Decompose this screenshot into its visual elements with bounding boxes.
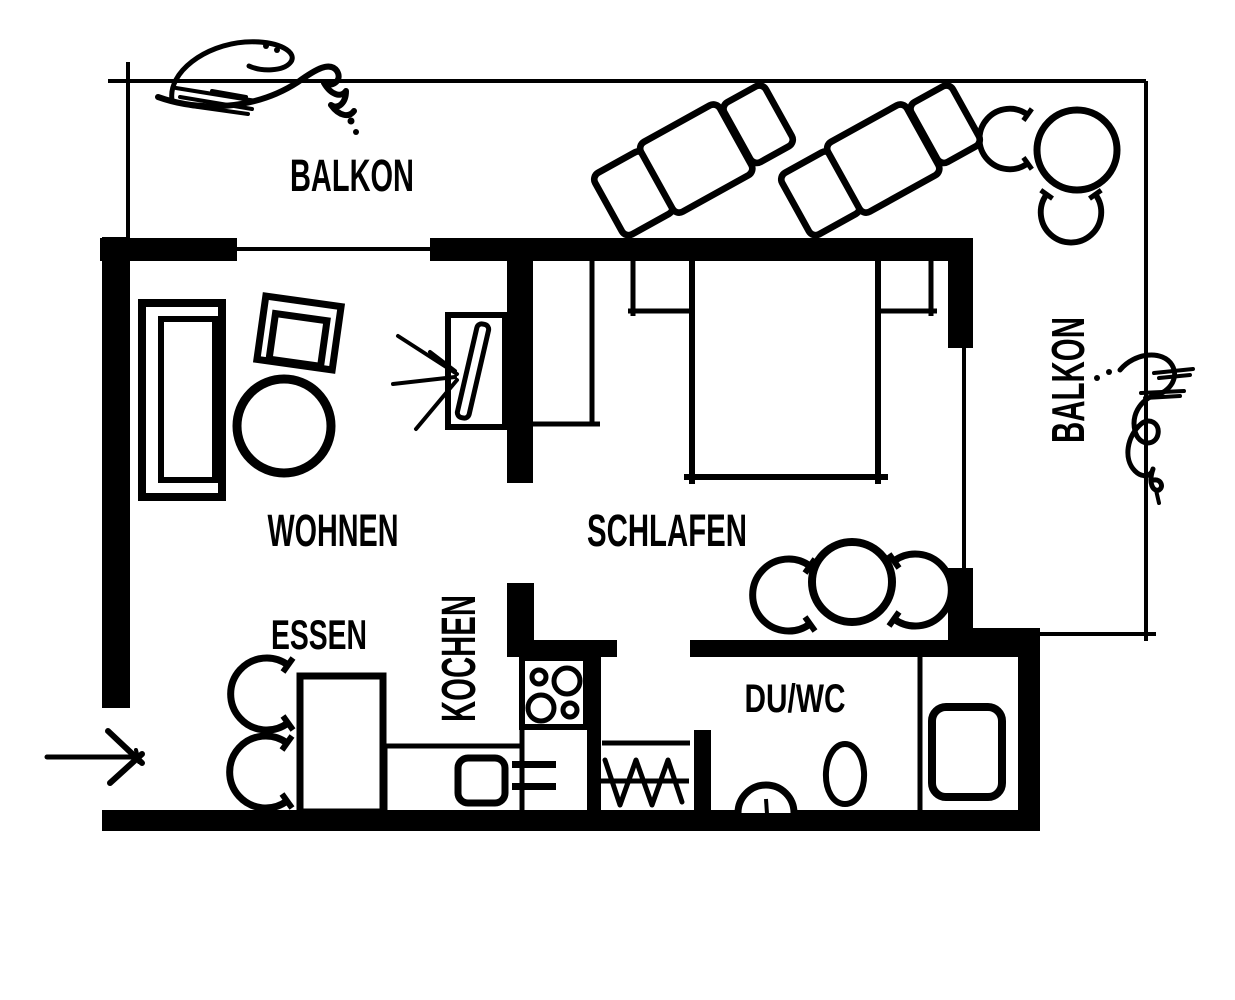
wall-right-upper bbox=[948, 261, 973, 348]
nightstand-right-icon bbox=[878, 261, 937, 316]
wall-kitchen-side bbox=[587, 657, 601, 812]
wall-bottom bbox=[102, 810, 1040, 831]
dining-furniture bbox=[230, 658, 383, 812]
counter-rail-1 bbox=[512, 761, 556, 768]
wall-divider-living-bedroom bbox=[507, 261, 533, 483]
radiator-icon bbox=[601, 743, 690, 805]
plant-scribble-right-icon bbox=[1094, 355, 1193, 503]
dining-chair-1-icon bbox=[231, 658, 293, 730]
dining-table-icon bbox=[300, 676, 383, 812]
wall-top-left bbox=[100, 238, 237, 261]
window-bedroom bbox=[962, 348, 966, 568]
living-room-furniture bbox=[142, 296, 505, 497]
room-label-balkon-top: BALKON bbox=[290, 150, 414, 201]
room-label-balkon-right: BALKON bbox=[1042, 317, 1094, 443]
floor-plan-drawing: BALKON BALKON WOHNEN SCHLAFEN ESSEN KOCH… bbox=[0, 0, 1235, 1000]
room-label-schlafen: SCHLAFEN bbox=[587, 505, 747, 556]
balcony-chair-1-icon bbox=[979, 109, 1031, 169]
coffee-table-icon bbox=[237, 379, 331, 473]
sink-icon bbox=[458, 758, 505, 803]
plant-hatching bbox=[176, 88, 256, 114]
bedroom-chair-2-icon bbox=[889, 554, 951, 626]
wall-left bbox=[102, 237, 130, 708]
washbasin-icon bbox=[738, 785, 794, 814]
wardrobe-icon bbox=[533, 261, 600, 426]
room-label-kochen: KOCHEN bbox=[433, 595, 486, 722]
wall-shower-right bbox=[1018, 657, 1040, 830]
nightstand-left-icon bbox=[628, 261, 692, 316]
sun-lounger-1-icon bbox=[589, 78, 798, 242]
wall-kitchen-top bbox=[534, 640, 617, 657]
sofa-seat bbox=[161, 319, 215, 480]
wall-bathroom-top bbox=[690, 640, 948, 657]
balcony-table-icon bbox=[1037, 110, 1117, 190]
plant-scribble-top-icon bbox=[158, 42, 359, 135]
wall-bathroom-top-right bbox=[973, 628, 1040, 657]
wall-radiator-stub bbox=[694, 730, 711, 812]
sun-lounger-2-icon bbox=[776, 78, 985, 242]
wall-top-main bbox=[430, 238, 973, 261]
bedroom-chair-1-icon bbox=[753, 559, 815, 631]
armchair-icon bbox=[257, 296, 341, 370]
wall-kitchen-stub bbox=[507, 583, 534, 657]
plant-leaves bbox=[1141, 369, 1193, 398]
dining-chair-2-icon bbox=[230, 736, 292, 808]
balcony-furniture bbox=[589, 78, 1117, 243]
shower-tray-icon bbox=[932, 707, 1002, 797]
bedroom-furniture bbox=[533, 261, 951, 631]
balcony-chair-2-icon bbox=[1041, 190, 1101, 242]
double-bed-icon bbox=[684, 261, 888, 484]
toilet-icon bbox=[826, 744, 864, 804]
bedroom-table-icon bbox=[812, 542, 892, 622]
tv-icon bbox=[393, 315, 505, 429]
entrance-arrow-icon bbox=[47, 731, 142, 783]
counter-rail-2 bbox=[512, 783, 556, 790]
floor-plan: BALKON BALKON WOHNEN SCHLAFEN ESSEN KOCH… bbox=[0, 0, 1235, 1000]
room-label-essen: ESSEN bbox=[271, 611, 367, 658]
room-label-wohnen: WOHNEN bbox=[268, 505, 399, 556]
window-living-room bbox=[237, 247, 430, 251]
room-label-du-wc: DU/WC bbox=[745, 677, 846, 721]
